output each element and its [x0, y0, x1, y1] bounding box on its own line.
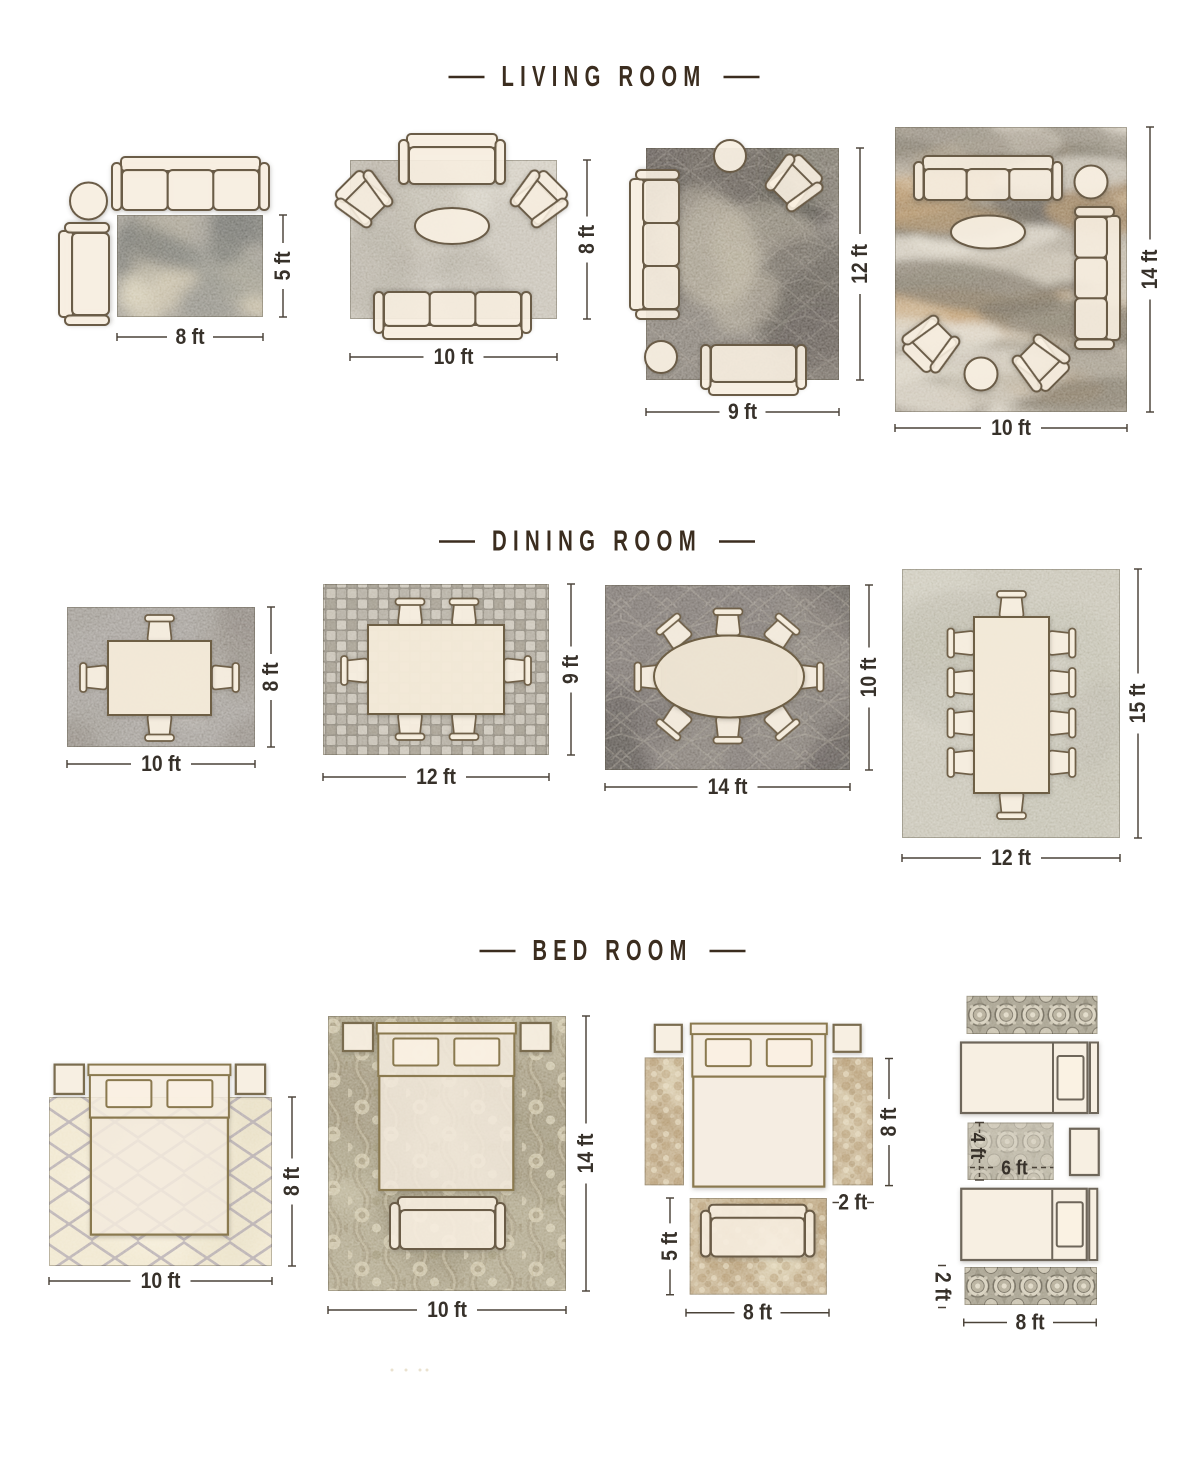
svg-text:9 ft: 9 ft — [559, 655, 583, 684]
svg-text:5 ft: 5 ft — [271, 251, 295, 280]
svg-text:2 ft: 2 ft — [930, 1272, 954, 1301]
svg-text:10 ft: 10 ft — [427, 1298, 467, 1322]
svg-text:10 ft: 10 ft — [141, 1269, 181, 1293]
svg-text:8 ft: 8 ft — [280, 1167, 304, 1196]
svg-text:15 ft: 15 ft — [1126, 684, 1150, 724]
svg-text:10 ft: 10 ft — [141, 752, 181, 776]
svg-text:14 ft: 14 ft — [708, 775, 748, 799]
svg-text:10 ft: 10 ft — [991, 416, 1031, 440]
svg-text:14 ft: 14 ft — [574, 1134, 598, 1174]
svg-text:DINING ROOM: DINING ROOM — [492, 526, 702, 558]
svg-text:8 ft: 8 ft — [259, 662, 283, 691]
svg-text:14 ft: 14 ft — [1138, 250, 1162, 290]
svg-text:12 ft: 12 ft — [991, 846, 1031, 870]
svg-text:6 ft: 6 ft — [1001, 1156, 1028, 1178]
svg-text:12 ft: 12 ft — [416, 765, 456, 789]
svg-text:5 ft: 5 ft — [658, 1232, 682, 1261]
svg-text:8 ft: 8 ft — [175, 325, 204, 349]
svg-text:12 ft: 12 ft — [848, 244, 872, 284]
svg-text:BED ROOM: BED ROOM — [533, 935, 693, 967]
svg-text:9 ft: 9 ft — [728, 400, 757, 424]
svg-text:8 ft: 8 ft — [743, 1301, 772, 1325]
svg-text:10 ft: 10 ft — [434, 345, 474, 369]
svg-text:8 ft: 8 ft — [877, 1107, 901, 1136]
svg-text:LIVING ROOM: LIVING ROOM — [502, 61, 707, 93]
svg-text:8 ft: 8 ft — [575, 225, 599, 254]
svg-text:8 ft: 8 ft — [1015, 1310, 1044, 1334]
svg-text:4 ft: 4 ft — [967, 1133, 989, 1160]
svg-text:2 ft: 2 ft — [838, 1190, 867, 1214]
svg-text:10 ft: 10 ft — [857, 658, 881, 698]
